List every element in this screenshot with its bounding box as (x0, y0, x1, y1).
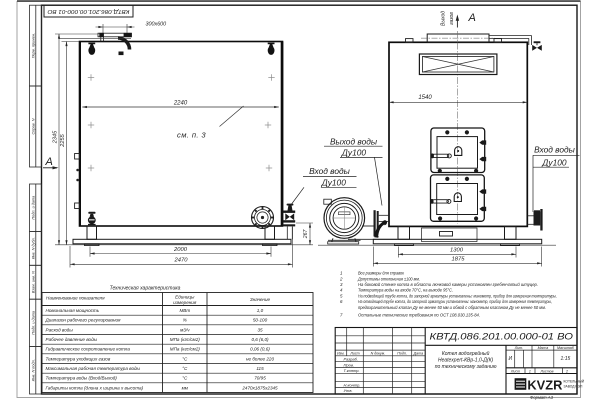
svg-text:КВТД.086.201.00.000-01 ВО: КВТД.086.201.00.000-01 ВО (430, 332, 574, 342)
svg-text:Heatexpert-КВр-1,0-Д(К): Heatexpert-КВр-1,0-Д(К) (438, 358, 494, 364)
svg-text:2: 2 (565, 369, 568, 373)
svg-text:Масса: Масса (538, 346, 549, 350)
svg-text:Подп.: Подп. (397, 351, 407, 355)
svg-text:Инв. N дубл.: Инв. N дубл. (32, 237, 36, 259)
svg-text:МВт: МВт (179, 308, 190, 313)
svg-text:ЗАВОД РЭП: ЗАВОД РЭП (564, 385, 583, 389)
svg-text:Все размеры для справок: Все размеры для справок (358, 271, 405, 276)
svg-text:2: 2 (339, 276, 343, 281)
svg-text:1:15: 1:15 (561, 356, 571, 362)
svg-text:И: И (509, 356, 513, 362)
svg-text:Остальные технические требован: Остальные технические требования по ОСТ … (358, 312, 480, 317)
svg-text:МПа (кгс/см2): МПа (кгс/см2) (170, 337, 200, 342)
svg-text:Температура уходящих газов: Температура уходящих газов (46, 356, 111, 361)
svg-text:Инв. N подл.: Инв. N подл. (32, 359, 36, 381)
svg-text:мм: мм (182, 385, 189, 390)
svg-text:Ду100: Ду100 (541, 157, 566, 167)
svg-text:А: А (45, 156, 53, 168)
svg-text:2470: 2470 (174, 258, 189, 264)
svg-text:%: % (183, 318, 187, 323)
svg-text:Перв. примен.: Перв. примен. (32, 33, 36, 58)
svg-text:Взам. инв. N: Взам. инв. N (32, 271, 36, 293)
svg-text:50-100: 50-100 (253, 318, 268, 323)
svg-text:Подп. и дата: Подп. и дата (32, 311, 36, 335)
svg-text:по техническому заданию: по техническому заданию (435, 364, 497, 370)
svg-text:Листов: Листов (539, 369, 553, 373)
svg-text:Расход воды: Расход воды (46, 327, 74, 332)
svg-text:см. п. 3: см. п. 3 (177, 131, 206, 140)
svg-text:предохранительный клапан Ду н: предохранительный клапан Ду не менее 50 … (358, 305, 546, 310)
svg-text:KVZR: KVZR (527, 378, 562, 393)
svg-text:Справ. N: Справ. N (32, 118, 36, 134)
svg-text:N докум.: N докум. (371, 351, 386, 355)
svg-text:70/95: 70/95 (254, 376, 266, 381)
svg-text:300х600: 300х600 (146, 22, 167, 28)
svg-text:2255: 2255 (60, 133, 66, 147)
svg-text:Н.контр.: Н.контр. (344, 382, 361, 387)
svg-text:Т.контр.: Т.контр. (344, 368, 360, 373)
svg-text:°С: °С (182, 356, 188, 361)
svg-text:Выход: Выход (441, 11, 447, 26)
svg-text:КОТЕЛЬНЫЙ: КОТЕЛЬНЫЙ (564, 380, 585, 384)
svg-text:Диапазон рабочего регулировани: Диапазон рабочего регулирования (45, 318, 122, 323)
svg-text:На отводящей трубе котла, до з: На отводящей трубе котла, до запорной ар… (358, 299, 552, 304)
svg-text:Гидравлическое сопротивление к: Гидравлическое сопротивление котла (46, 347, 131, 352)
svg-text:Номинальная мощность: Номинальная мощность (46, 308, 100, 313)
svg-text:2470х1875х2345: 2470х1875х2345 (241, 385, 278, 390)
svg-text:2345: 2345 (53, 130, 59, 144)
svg-text:Вход воды: Вход воды (309, 166, 350, 176)
svg-text:°С: °С (182, 376, 188, 381)
svg-text:не более 220: не более 220 (246, 356, 274, 361)
svg-text:На подводящей трубе котла, д: На подводящей трубе котла, до запорной а… (358, 293, 557, 298)
svg-text:Подп. и дата: Подп. и дата (32, 196, 36, 220)
svg-text:2000: 2000 (173, 247, 188, 253)
svg-text:На боковой стенке котла в обла: На боковой стенке котла в области лючков… (358, 282, 538, 287)
svg-text:измерения: измерения (173, 300, 197, 305)
svg-text:Габариты котла (длина х ширина: Габариты котла (длина х ширина х высота) (46, 385, 144, 390)
svg-text:Изм.: Изм. (337, 351, 345, 355)
svg-text:Разраб.: Разраб. (344, 356, 358, 361)
svg-text:35: 35 (257, 327, 263, 332)
svg-text:1: 1 (529, 369, 531, 373)
svg-text:Техническая характеристика: Техническая характеристика (110, 285, 181, 291)
svg-text:Формат А3: Формат А3 (530, 395, 554, 400)
svg-text:КВТД.086.201.00.000-01 ВО: КВТД.086.201.00.000-01 ВО (47, 8, 130, 14)
svg-text:0,06 (0,6): 0,06 (0,6) (250, 347, 270, 352)
svg-text:1875: 1875 (452, 257, 466, 263)
svg-text:газов: газов (449, 12, 455, 25)
svg-text:Допустимы отклонения ±100 мм.: Допустимы отклонения ±100 мм. (357, 276, 420, 281)
svg-text:Температура воды на входе 70°: Температура воды на входе 70°С, на выход… (358, 288, 453, 293)
svg-text:267: 267 (303, 228, 309, 239)
svg-text:Значение: Значение (250, 297, 271, 302)
svg-text:Выход воды: Выход воды (330, 136, 377, 146)
svg-text:Вход воды: Вход воды (534, 145, 575, 155)
svg-text:Лист: Лист (349, 351, 359, 355)
svg-text:Рабочее давление воды: Рабочее давление воды (46, 337, 98, 342)
svg-text:Дата: Дата (413, 351, 423, 355)
svg-text:Утв.: Утв. (344, 388, 353, 393)
svg-text:Максимальная рабочая температу: Максимальная рабочая температура воды (46, 366, 141, 371)
svg-text:115: 115 (256, 366, 264, 371)
svg-text:м3/ч: м3/ч (180, 327, 190, 332)
svg-text:Пров.: Пров. (344, 362, 355, 367)
svg-text:Ду100: Ду100 (341, 148, 366, 158)
svg-text:Лист: Лист (510, 369, 520, 373)
svg-text:Единицы: Единицы (175, 295, 195, 300)
svg-text:2240: 2240 (173, 100, 188, 106)
svg-text:Масштаб: Масштаб (557, 346, 575, 350)
svg-text:А: А (468, 12, 476, 24)
svg-text:1540: 1540 (418, 95, 432, 101)
svg-text:1300: 1300 (450, 247, 464, 253)
svg-text:Наименование показателя: Наименование показателя (46, 295, 105, 300)
svg-text:Ду100: Ду100 (321, 177, 346, 187)
svg-text:°С: °С (182, 366, 188, 371)
svg-text:МПа (кгс/см2): МПа (кгс/см2) (170, 347, 200, 352)
svg-text:Котел водогрейный: Котел водогрейный (442, 350, 490, 357)
svg-text:1,0: 1,0 (257, 308, 264, 313)
svg-text:Температура воды (Вход/Выход): Температура воды (Вход/Выход) (46, 376, 118, 381)
svg-text:0,6 (6,0): 0,6 (6,0) (251, 337, 269, 342)
svg-text:Лит.: Лит. (514, 346, 523, 350)
